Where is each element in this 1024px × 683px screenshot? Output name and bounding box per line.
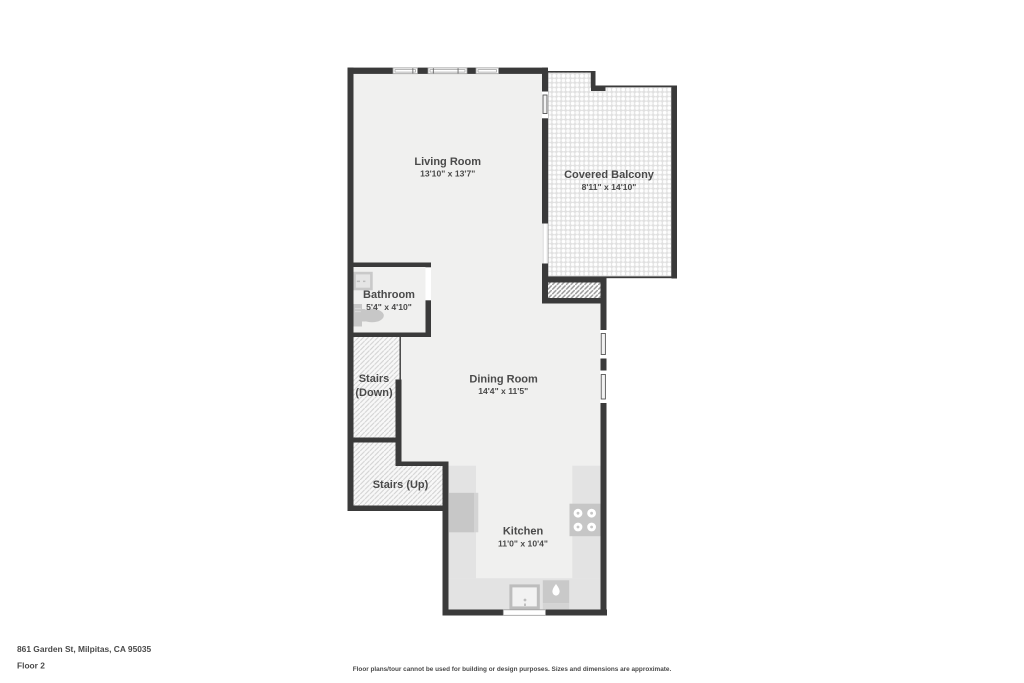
- svg-text:13'10" x 13'7": 13'10" x 13'7": [420, 168, 475, 178]
- svg-text:Covered Balcony: Covered Balcony: [564, 169, 655, 181]
- svg-text:Floor 2: Floor 2: [17, 660, 45, 670]
- svg-text:861 Garden St, Milpitas, CA 95: 861 Garden St, Milpitas, CA 95035: [17, 644, 152, 654]
- svg-text:Floor plans/tour cannot be use: Floor plans/tour cannot be used for buil…: [353, 666, 672, 673]
- svg-text:Dining Room: Dining Room: [469, 374, 538, 386]
- svg-text:Living Room: Living Room: [414, 156, 481, 168]
- svg-text:5'4" x 4'10": 5'4" x 4'10": [366, 302, 412, 312]
- svg-text:Kitchen: Kitchen: [503, 526, 544, 538]
- svg-text:Bathroom: Bathroom: [363, 289, 415, 301]
- svg-text:Stairs: Stairs: [359, 373, 390, 385]
- svg-text:Stairs (Up): Stairs (Up): [373, 479, 429, 491]
- svg-text:14'4" x 11'5": 14'4" x 11'5": [478, 386, 528, 396]
- svg-text:11'0" x 10'4": 11'0" x 10'4": [498, 538, 548, 548]
- svg-text:(Down): (Down): [355, 387, 393, 399]
- svg-text:8'11" x 14'10": 8'11" x 14'10": [582, 182, 637, 192]
